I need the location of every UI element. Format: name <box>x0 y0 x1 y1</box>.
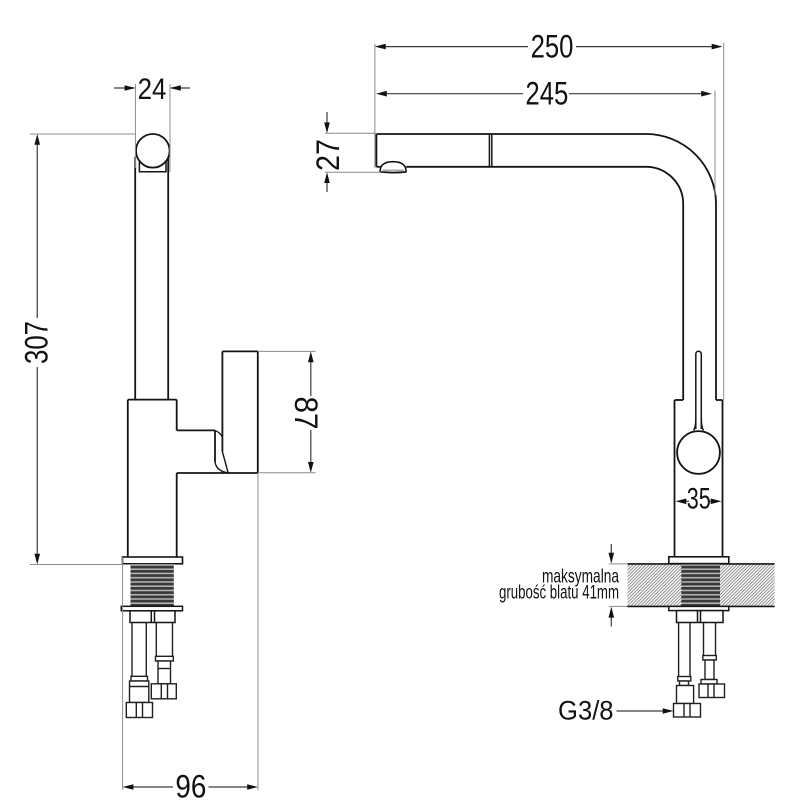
svg-text:96: 96 <box>175 768 206 800</box>
svg-text:grubość blatu 41mm: grubość blatu 41mm <box>499 582 619 604</box>
svg-text:245: 245 <box>525 75 568 111</box>
svg-text:24: 24 <box>138 73 167 106</box>
svg-text:307: 307 <box>18 321 54 364</box>
svg-text:27: 27 <box>310 139 346 171</box>
svg-text:35: 35 <box>687 482 711 515</box>
svg-text:87: 87 <box>288 397 324 430</box>
svg-text:G3/8: G3/8 <box>558 696 614 726</box>
svg-text:250: 250 <box>531 29 574 65</box>
